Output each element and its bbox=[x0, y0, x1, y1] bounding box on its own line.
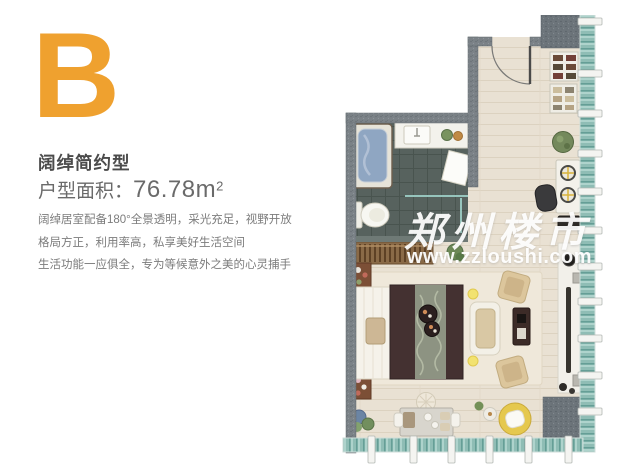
wall-bath-right bbox=[468, 37, 478, 187]
column-top bbox=[541, 15, 581, 48]
floorplan-svg bbox=[330, 15, 625, 465]
window-bottom bbox=[343, 436, 583, 463]
pot bbox=[569, 388, 575, 394]
floor-lamp-upper bbox=[468, 289, 478, 299]
unit-area-value: 76.78m bbox=[133, 176, 216, 203]
description-line: 格局方正，利用率高，私享美好生活空间 bbox=[38, 232, 328, 255]
vanity-bowl bbox=[454, 132, 463, 141]
coffee-machine bbox=[558, 216, 580, 229]
vanity-sink bbox=[395, 122, 468, 148]
floorplan bbox=[330, 15, 625, 465]
wall-entry-left bbox=[468, 37, 492, 46]
wardrobe bbox=[356, 242, 433, 264]
page: B 阔绰简约型 户型面积：76.78m2 阔绰居室配备180°全景透明，采光充足… bbox=[0, 0, 625, 470]
desk-chair bbox=[451, 413, 460, 427]
window-right bbox=[578, 15, 602, 452]
counter-knob bbox=[563, 254, 575, 266]
wall-bath-top bbox=[346, 113, 478, 123]
bathtub bbox=[353, 124, 392, 188]
description-line: 阔绰居室配备180°全景透明，采光充足，视野开放 bbox=[38, 209, 328, 232]
unit-area: 户型面积：76.78m2 bbox=[38, 176, 223, 204]
side-table-drink bbox=[484, 408, 497, 421]
floor-plant-leaf bbox=[456, 253, 465, 262]
yellow-armchair bbox=[499, 403, 531, 435]
stove bbox=[556, 160, 580, 213]
unit-area-sup: 2 bbox=[216, 179, 223, 194]
tv-cabinet bbox=[513, 308, 530, 345]
pot bbox=[559, 383, 567, 391]
floor-lamp-lower bbox=[468, 356, 478, 366]
double-bed bbox=[356, 285, 463, 379]
kitchen-shelf-lower bbox=[550, 84, 577, 113]
unit-type-title: 阔绰简约型 bbox=[38, 150, 131, 175]
loveseat bbox=[470, 302, 500, 355]
small-plant bbox=[475, 402, 484, 411]
kitchen-shelf-upper bbox=[550, 52, 578, 81]
unit-description: 阔绰居室配备180°全景透明，采光充足，视野开放 格局方正，利用率高，私享美好生… bbox=[38, 209, 328, 277]
column-bottom bbox=[543, 397, 583, 438]
wall-left bbox=[346, 113, 356, 453]
sink-plant bbox=[553, 132, 574, 153]
vanity-plant bbox=[442, 130, 453, 141]
toilet bbox=[354, 202, 389, 228]
desk-chair bbox=[394, 413, 403, 427]
description-line: 生活功能一应俱全，专为等候意外之美的心灵捕手 bbox=[38, 254, 328, 277]
bathroom bbox=[353, 121, 472, 237]
unit-area-label: 户型面积： bbox=[38, 181, 133, 202]
wall-bath-bottom bbox=[356, 236, 468, 242]
unit-letter: B bbox=[32, 14, 118, 136]
dining-desk bbox=[394, 408, 460, 436]
bed-pillow bbox=[366, 318, 385, 344]
